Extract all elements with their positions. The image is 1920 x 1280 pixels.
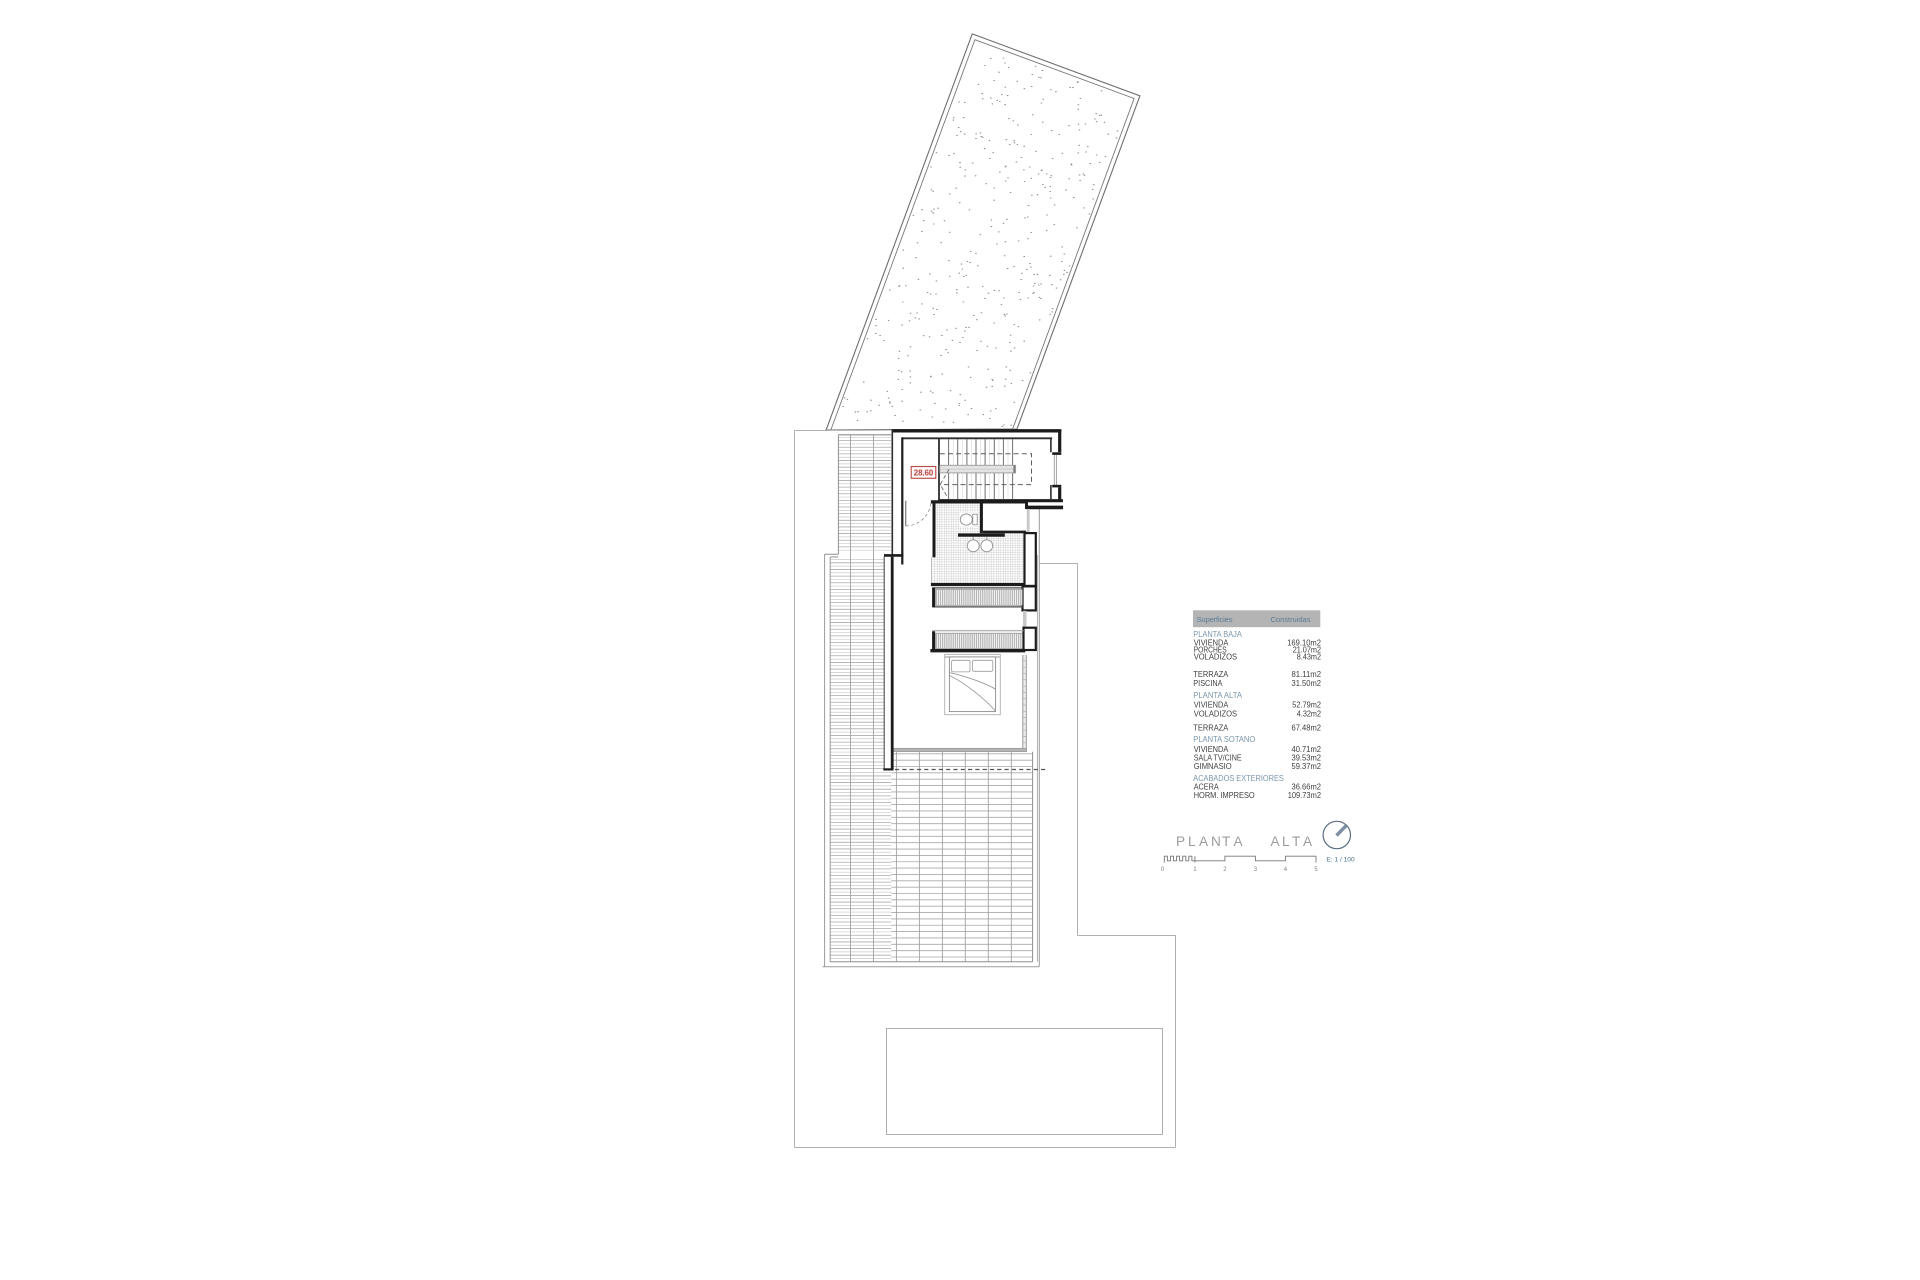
- svg-text:109.73m2: 109.73m2: [1288, 790, 1322, 800]
- svg-text:VOLADIZOS: VOLADIZOS: [1194, 651, 1238, 661]
- svg-text:PISCINA: PISCINA: [1193, 678, 1223, 688]
- svg-text:VOLADIZOS: VOLADIZOS: [1194, 708, 1238, 718]
- svg-text:PLANTA SOTANO: PLANTA SOTANO: [1193, 734, 1255, 744]
- svg-text:31.50m2: 31.50m2: [1292, 678, 1322, 688]
- svg-text:PLANTA ALTA: PLANTA ALTA: [1193, 690, 1242, 700]
- svg-text:67.48m2: 67.48m2: [1292, 723, 1322, 733]
- svg-text:Construidas: Construidas: [1271, 615, 1311, 624]
- svg-text:8.43m2: 8.43m2: [1297, 651, 1322, 661]
- svg-text:4.32m2: 4.32m2: [1297, 708, 1322, 718]
- svg-text:GIMNASIO: GIMNASIO: [1194, 761, 1232, 771]
- svg-text:E: 1 / 100: E: 1 / 100: [1326, 857, 1355, 864]
- svg-text:59.37m2: 59.37m2: [1292, 761, 1322, 771]
- svg-text:Superficies: Superficies: [1197, 615, 1233, 624]
- svg-text:HORM. IMPRESO: HORM. IMPRESO: [1194, 790, 1255, 800]
- svg-text:28.60: 28.60: [914, 469, 934, 478]
- svg-text:TERRAZA: TERRAZA: [1193, 723, 1228, 733]
